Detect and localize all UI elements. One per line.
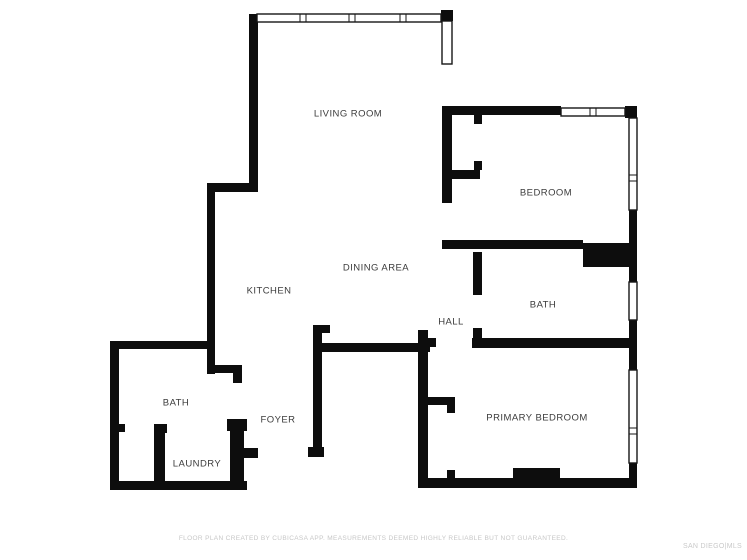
room-label-bedroom: BEDROOM bbox=[520, 188, 572, 199]
room-label-hall: HALL bbox=[438, 317, 464, 328]
wall-segment bbox=[447, 470, 455, 479]
wall-segment bbox=[473, 252, 482, 295]
wall-segment bbox=[110, 341, 215, 349]
room-label-primary-bedroom: PRIMARY BEDROOM bbox=[486, 413, 587, 424]
wall-segment bbox=[110, 341, 119, 490]
wall-segment bbox=[442, 106, 561, 115]
wall-segment bbox=[238, 448, 258, 458]
wall-segment bbox=[474, 115, 482, 124]
room-label-laundry: LAUNDRY bbox=[173, 459, 221, 470]
room-label-dining-area: DINING AREA bbox=[343, 263, 409, 274]
window bbox=[629, 282, 637, 320]
room-label-bath-lower: BATH bbox=[163, 398, 189, 409]
wall-segment bbox=[447, 405, 455, 413]
wall-segment bbox=[442, 240, 583, 249]
wall-segment bbox=[583, 243, 630, 267]
room-label-bath-upper: BATH bbox=[530, 300, 556, 311]
wall-segment bbox=[207, 365, 242, 373]
window bbox=[629, 118, 637, 210]
wall-segment bbox=[308, 447, 324, 457]
wall-segment bbox=[442, 106, 452, 203]
wall-segment bbox=[474, 161, 482, 170]
wall-segment bbox=[233, 373, 242, 383]
footer-disclaimer: FLOOR PLAN CREATED BY CUBICASA APP. MEAS… bbox=[179, 535, 568, 542]
wall-segment bbox=[441, 10, 453, 21]
mls-watermark: SAN DIEGO|MLS bbox=[683, 543, 742, 550]
wall-segment bbox=[313, 325, 322, 457]
wall-segment bbox=[625, 106, 637, 118]
wall-segment bbox=[154, 424, 167, 433]
wall-segment bbox=[119, 424, 125, 432]
room-label-foyer: FOYER bbox=[261, 415, 296, 426]
wall-segment bbox=[472, 338, 637, 348]
floor-plan: LIVING ROOMBEDROOMKITCHENDINING AREAHALL… bbox=[0, 0, 747, 560]
window bbox=[257, 14, 441, 22]
room-label-living-room: LIVING ROOM bbox=[314, 109, 382, 120]
window bbox=[561, 108, 625, 116]
wall-segment bbox=[428, 338, 436, 347]
window bbox=[442, 21, 452, 64]
wall-segment bbox=[227, 419, 247, 431]
wall-segment bbox=[513, 468, 560, 480]
wall-segment bbox=[313, 325, 330, 333]
wall-segment bbox=[629, 210, 637, 282]
wall-segment bbox=[249, 14, 258, 192]
window bbox=[629, 370, 637, 463]
wall-segment bbox=[317, 343, 430, 352]
room-label-kitchen: KITCHEN bbox=[247, 286, 292, 297]
floor-plan-drawing bbox=[0, 0, 747, 560]
wall-segment bbox=[442, 170, 480, 179]
wall-segment bbox=[428, 397, 455, 405]
wall-segment bbox=[418, 330, 428, 488]
wall-segment bbox=[110, 481, 247, 490]
